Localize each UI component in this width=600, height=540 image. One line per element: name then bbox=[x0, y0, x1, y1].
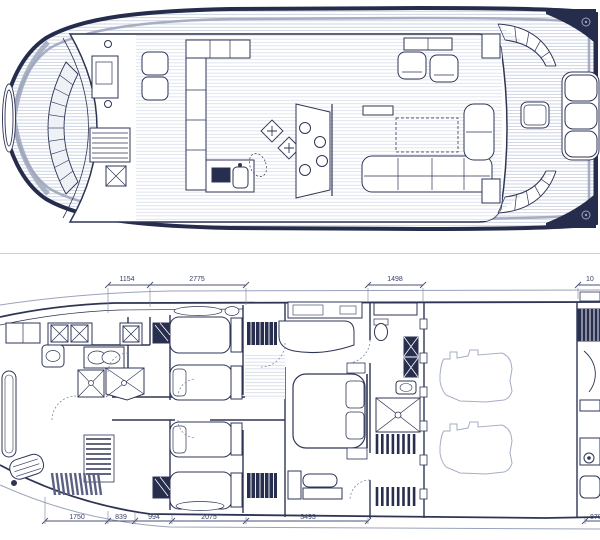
deck-grating bbox=[52, 473, 101, 495]
yacht-deck-plans-screenshot: 1154 2775 1498 10 1750 839 994 2075 3493… bbox=[0, 0, 600, 540]
helm-seat bbox=[142, 77, 168, 100]
door-swing bbox=[584, 351, 595, 392]
bed-pillow-dark bbox=[153, 323, 170, 343]
dim-label: 1154 bbox=[119, 276, 134, 284]
forward-cabin bbox=[2, 323, 144, 495]
dumbwaiter bbox=[106, 166, 126, 186]
dim-label: 994 bbox=[148, 514, 160, 522]
wardrobe bbox=[231, 318, 242, 352]
duvet-roll bbox=[174, 307, 222, 316]
stair-treads bbox=[377, 487, 414, 506]
dim-label: 839 bbox=[115, 514, 127, 522]
galley-tall-unit bbox=[186, 58, 206, 190]
bed-pillow bbox=[173, 426, 186, 453]
master-cabin bbox=[279, 302, 367, 499]
dim-label: 2075 bbox=[201, 514, 217, 522]
lobby-floor bbox=[245, 355, 285, 399]
ottoman bbox=[303, 474, 337, 487]
master-bathroom bbox=[374, 303, 420, 506]
toilet-icon bbox=[375, 324, 388, 341]
helm-seat bbox=[142, 52, 168, 75]
crew-stairs bbox=[578, 309, 600, 341]
lobby bbox=[245, 322, 285, 498]
washer-dryer-stack bbox=[404, 337, 418, 377]
bathtub bbox=[84, 347, 124, 368]
galley-sink bbox=[233, 167, 248, 188]
chaise-longue bbox=[7, 452, 46, 482]
dim-label: 1750 bbox=[69, 514, 85, 522]
dim-label-partial: 870 bbox=[590, 514, 600, 522]
shower-stall bbox=[78, 370, 104, 397]
bar-counter bbox=[296, 104, 330, 198]
wardrobe bbox=[231, 423, 242, 455]
dim-label: 2775 bbox=[189, 276, 205, 284]
tv-cabinet bbox=[303, 488, 342, 499]
nightstand bbox=[347, 363, 365, 373]
stair-block bbox=[247, 473, 277, 498]
bow-sunpad bbox=[3, 84, 16, 152]
bath-cabinet bbox=[374, 303, 417, 315]
armchair bbox=[398, 52, 426, 79]
bed-pillow-dark bbox=[153, 477, 170, 498]
shower-stall bbox=[376, 398, 420, 432]
galley-cabinet bbox=[186, 40, 250, 58]
guest-bed bbox=[170, 317, 230, 353]
deck-locker bbox=[482, 34, 500, 58]
engine-outline bbox=[440, 350, 512, 402]
nightstand bbox=[347, 448, 367, 459]
companionway-stairs bbox=[90, 128, 130, 162]
engine-outline bbox=[440, 422, 512, 474]
deck-locker bbox=[482, 179, 500, 203]
shower-stall bbox=[106, 368, 144, 400]
side-console bbox=[363, 106, 393, 115]
salon-sofa bbox=[362, 156, 492, 192]
dim-label: 3493 bbox=[300, 514, 316, 522]
plan-divider bbox=[0, 253, 600, 254]
twin-cabins bbox=[153, 307, 242, 511]
main-deck-plan bbox=[0, 0, 600, 255]
crew-cabinet bbox=[580, 400, 600, 411]
stair-block bbox=[247, 322, 277, 345]
washer-units bbox=[48, 323, 92, 345]
stair-treads bbox=[377, 434, 414, 454]
dim-label-partial: 10 bbox=[586, 276, 594, 284]
lower-deck-plan bbox=[0, 255, 600, 540]
bed-pillow bbox=[346, 381, 364, 408]
bed-pillow bbox=[173, 369, 186, 396]
dim-label: 1498 bbox=[387, 276, 403, 284]
transom-seat bbox=[562, 72, 599, 160]
oven-icon bbox=[212, 168, 230, 182]
engine-room bbox=[420, 319, 512, 499]
compass-icon bbox=[105, 41, 112, 48]
laundry-unit bbox=[120, 323, 142, 345]
crew-quarters bbox=[578, 292, 600, 498]
wardrobe bbox=[231, 366, 242, 399]
wardrobe bbox=[231, 473, 242, 507]
master-settee bbox=[279, 321, 354, 353]
bed-pillow bbox=[346, 412, 364, 439]
armchair bbox=[430, 55, 458, 82]
wardrobe bbox=[288, 471, 301, 499]
crew-berth bbox=[580, 476, 600, 498]
